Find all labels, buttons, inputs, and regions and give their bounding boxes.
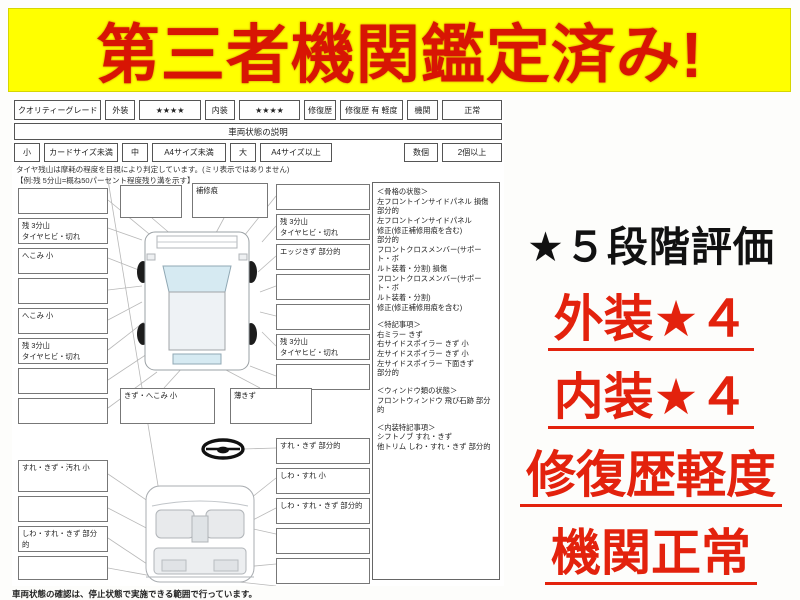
size-small-desc-cell: カードサイズ未満 (44, 143, 118, 162)
annotation-box: 残 3分山 タイヤヒビ・切れ (276, 214, 370, 240)
annotation-box (276, 184, 370, 210)
section-heading: ＜特記事項＞ (377, 320, 495, 330)
annotation-box: へこみ 小 (18, 308, 108, 334)
exterior-stars-cell: ★★★★ (139, 100, 201, 120)
size-mid-cell: 中 (122, 143, 148, 162)
annotation-box: エッジきず 部分的 (276, 244, 370, 270)
annotation-box (276, 304, 370, 330)
annotation-box (18, 496, 108, 522)
exterior-rating: 外装★４ (505, 294, 797, 351)
size-legend-row: 小 カードサイズ未満 中 A4サイズ未満 大 A4サイズ以上 数個 2個以上 (14, 143, 502, 162)
size-mid-desc-cell: A4サイズ未満 (152, 143, 226, 162)
interior-label-cell: 内装 (205, 100, 235, 120)
tire-note-line1: タイヤ残山は摩耗の程度を目視により判定しています。(ミリ表示ではありません) (16, 165, 502, 175)
section-heading: ＜ウィンドウ類の状態＞ (377, 386, 495, 396)
annotation-box (18, 188, 108, 214)
interior-stars-cell: ★★★★ (239, 100, 301, 120)
annotation-box (276, 274, 370, 300)
steering-wheel-icon (200, 438, 246, 460)
annotation-box (18, 556, 108, 580)
repair-history-rating: 修復歴軽度 (505, 450, 797, 507)
footer-note: 車両状態の確認は、停止状態で実施できる範囲で行っています。 (12, 588, 257, 600)
annotation-box: へこみ 小 (18, 248, 108, 274)
rating-panel: ★５段階評価 外装★４ 内装★４ 修復歴軽度 機関正常 (505, 213, 797, 585)
car-top-view-diagram (135, 228, 259, 376)
size-small-cell: 小 (14, 143, 40, 162)
quality-grade-row: クオリティーグレード 外装 ★★★★ 内装 ★★★★ 修復歴 修復歴 有 軽度 … (14, 100, 502, 120)
engine-status-rating: 機関正常 (505, 528, 797, 585)
interior-rating: 内装★４ (505, 372, 797, 429)
section-title-row: 車両状態の説明 (14, 123, 502, 140)
grade-label-cell: クオリティーグレード (14, 100, 101, 120)
engine-label-cell: 機関 (407, 100, 439, 120)
count-label-cell: 数個 (404, 143, 438, 162)
annotation-box: 残 3分山 タイヤヒビ・切れ (276, 334, 370, 360)
annotation-box (120, 185, 182, 218)
annotation-box (18, 278, 108, 304)
annotation-box: 残 3分山 タイヤヒビ・切れ (18, 338, 108, 364)
inspection-banner-text: 第三者機関鑑定済み! (96, 4, 703, 96)
section-heading: ＜内装特記事項＞ (377, 423, 495, 433)
annotation-box (276, 558, 370, 584)
repair-history-value-cell: 修復歴 有 軽度 (340, 100, 403, 120)
section-body: 右ミラー きず 右サイドスポイラー きず 小 左サイドスポイラー きず 小 左サ… (377, 330, 495, 378)
rating-panel-title: ★５段階評価 (505, 213, 797, 273)
annotation-box (276, 364, 370, 390)
notable-items-section: ＜特記事項＞ 右ミラー きず 右サイドスポイラー きず 小 左サイドスポイラー … (377, 320, 495, 378)
inspection-banner: 第三者機関鑑定済み! (8, 8, 791, 92)
engine-status-text: 機関正常 (545, 528, 757, 585)
section-title: 車両状態の説明 (14, 123, 502, 140)
annotation-box: 補修痕 (192, 183, 268, 218)
exterior-rating-text: 外装★４ (548, 294, 755, 351)
annotation-box: きず・へこみ 小 (120, 388, 215, 424)
count-value-cell: 2個以上 (442, 143, 502, 162)
car-rear-view-diagram (138, 476, 262, 588)
window-condition-section: ＜ウィンドウ類の状態＞ フロントウィンドウ 飛び石跡 部分的 (377, 386, 495, 415)
size-large-desc-cell: A4サイズ以上 (260, 143, 332, 162)
interior-notes-section: ＜内装特記事項＞ シフトノブ すれ・きず 他トリム しわ・すれ・きず 部分的 (377, 423, 495, 452)
annotation-box: しわ・すれ・きず 部分的 (276, 498, 370, 524)
section-body: 左フロントインサイドパネル 損傷 部分的 左フロントインサイドパネル 修正(修正… (377, 197, 495, 313)
annotation-box: すれ・きず・汚れ 小 (18, 460, 108, 492)
section-body: フロントウィンドウ 飛び石跡 部分的 (377, 396, 495, 415)
section-body: シフトノブ すれ・きず 他トリム しわ・すれ・きず 部分的 (377, 432, 495, 451)
annotation-box: しわ・すれ・きず 部分的 (18, 526, 108, 552)
skeleton-condition-section: ＜骨格の状態＞ 左フロントインサイドパネル 損傷 部分的 左フロントインサイドパ… (377, 187, 495, 312)
annotation-box (18, 398, 108, 424)
inspection-sheet-page: 第三者機関鑑定済み! クオリティーグレード 外装 ★★★★ 内装 ★★★★ 修復… (0, 0, 800, 600)
annotation-box (18, 368, 108, 394)
annotation-box (276, 528, 370, 554)
repair-history-label-cell: 修復歴 (304, 100, 336, 120)
annotation-box: 残 3分山 タイヤヒビ・切れ (18, 218, 108, 244)
annotation-box: 薄きず (230, 388, 312, 424)
vehicle-condition-diagram: 残 3分山 タイヤヒビ・切れ へこみ 小 へこみ 小 残 3分山 タイヤヒビ・切… (12, 180, 504, 586)
engine-value-cell: 正常 (442, 100, 502, 120)
exterior-label-cell: 外装 (105, 100, 135, 120)
annotation-box: すれ・きず 部分的 (276, 438, 370, 464)
condition-notes-column: ＜骨格の状態＞ 左フロントインサイドパネル 損傷 部分的 左フロントインサイドパ… (372, 182, 500, 580)
annotation-box: しわ・すれ 小 (276, 468, 370, 494)
repair-history-text: 修復歴軽度 (520, 450, 782, 507)
interior-rating-text: 内装★４ (548, 372, 755, 429)
section-heading: ＜骨格の状態＞ (377, 187, 495, 197)
size-large-cell: 大 (230, 143, 256, 162)
